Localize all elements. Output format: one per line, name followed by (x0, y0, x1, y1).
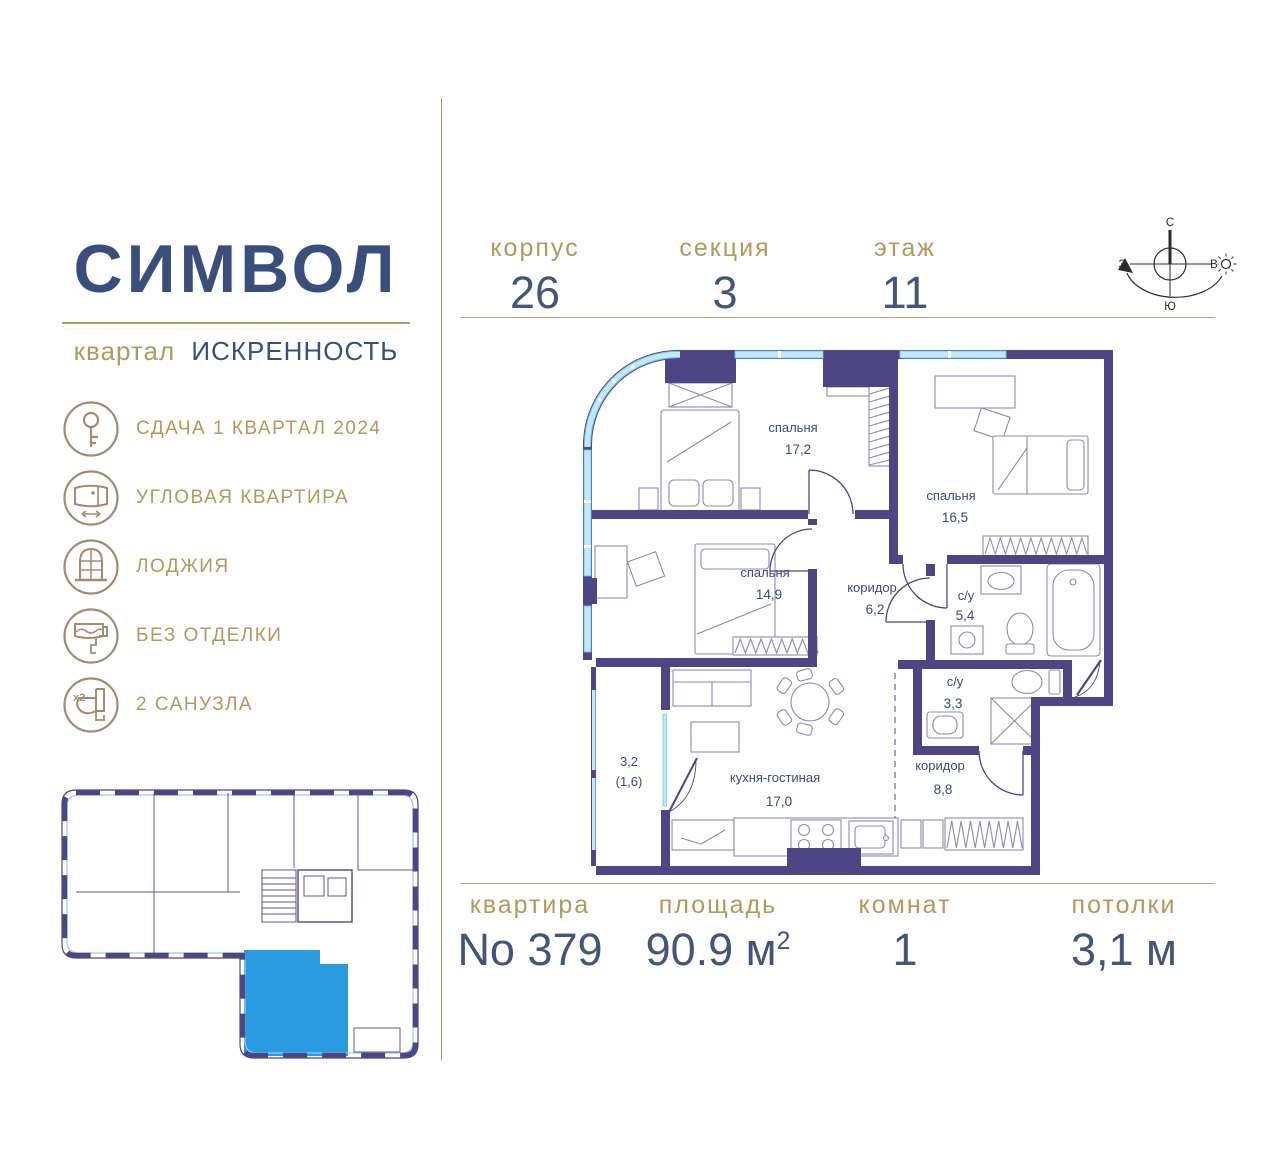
stat-value: No 379 (440, 924, 620, 976)
key-icon (62, 400, 120, 458)
tv-cabinet (672, 820, 734, 850)
stat-value: 3 (645, 267, 805, 319)
room-area: 8,8 (934, 782, 953, 797)
stat-label: секция (645, 234, 805, 263)
cabinet (901, 820, 921, 848)
stat-ceiling: потолки 3,1 м (1034, 891, 1214, 976)
brand-subtitle: квартал ИСКРЕННОСТЬ (62, 336, 410, 367)
toilet-x2-icon: x2 (62, 676, 120, 734)
stat-building: корпус 26 (455, 234, 615, 319)
feature-bathrooms: x2 2 САНУЗЛА (62, 674, 432, 736)
stat-value: 3,1 м (1034, 924, 1214, 976)
stat-label: этаж (825, 234, 985, 263)
footer-rule (460, 883, 1215, 884)
stat-label: корпус (455, 234, 615, 263)
pillow (1067, 440, 1084, 490)
building-floor-overview (58, 782, 436, 1070)
nightstand (741, 488, 760, 510)
stat-label: потолки (1034, 891, 1214, 920)
chair (828, 708, 845, 726)
stat-value: 90.9 м2 (628, 924, 808, 976)
cabinet (923, 820, 943, 848)
highlighted-unit[interactable] (244, 950, 348, 1056)
room-name: коридор (915, 758, 965, 773)
room-area: 3,3 (944, 696, 963, 711)
chair (627, 552, 664, 587)
room-area: 14,9 (756, 587, 782, 602)
feature-label: 2 САНУЗЛА (136, 694, 253, 716)
loggia-area-reduced: (1,6) (616, 774, 643, 789)
corner-apartment-icon (62, 469, 120, 527)
pillow (703, 480, 733, 506)
stat-value-text: 3,1 м (1071, 924, 1177, 975)
stat-value-text: No 379 (457, 924, 602, 975)
room-area: 5,4 (956, 608, 975, 623)
stat-value-text: 90.9 м (646, 924, 777, 975)
room-name: с/у (947, 674, 964, 689)
room-name: коридор (847, 580, 897, 595)
stat-floor: этаж 11 (825, 234, 985, 319)
chair (796, 668, 813, 682)
feature-finish: БЕЗ ОТДЕЛКИ (62, 605, 432, 667)
district-name: ИСКРЕННОСТЬ (191, 336, 398, 366)
stat-rooms: комнат 1 (815, 891, 995, 976)
dining-table (791, 683, 829, 721)
toilet (1007, 613, 1033, 645)
stat-value-sup: 2 (777, 928, 791, 955)
brand-logo: СИМВОЛ (60, 230, 412, 308)
apartment-floor-plan: спальня 17,2 спальня 16,5 спальня 14,9 к… (583, 350, 1113, 875)
stat-value: 1 (815, 924, 995, 976)
room-name: спальня (768, 420, 817, 435)
stat-apartment-number: квартира No 379 (440, 891, 620, 976)
room-name: спальня (926, 488, 975, 503)
desk (935, 376, 1015, 408)
room-name: спальня (740, 565, 789, 580)
arched-window-icon (62, 538, 120, 596)
compass-west: З (1119, 259, 1126, 271)
district-label: квартал (74, 336, 176, 366)
chair (776, 677, 793, 695)
stat-area: площадь 90.9 м2 (628, 891, 808, 976)
chair (796, 722, 813, 736)
feature-label: СДАЧА 1 КВАРТАЛ 2024 (136, 418, 382, 440)
stat-section: секция 3 (645, 234, 805, 319)
desk (595, 546, 627, 598)
logo-divider (62, 322, 410, 324)
toilet (1012, 671, 1042, 694)
room-name: с/у (958, 588, 975, 603)
coffee-table (691, 722, 739, 752)
x2-badge: x2 (73, 692, 85, 704)
stat-label: комнат (815, 891, 995, 920)
furniture-layer (595, 376, 1100, 856)
stat-value: 26 (455, 267, 615, 319)
unit-notch (320, 950, 348, 964)
stat-value: 11 (825, 267, 985, 319)
pillow (669, 480, 699, 506)
nightstand (639, 488, 658, 510)
compass-south: Ю (1164, 301, 1176, 313)
chair (828, 677, 845, 695)
compass-north: С (1166, 217, 1174, 229)
room-area: 17,0 (766, 794, 792, 809)
stat-label: квартира (440, 891, 620, 920)
compass-east: В (1210, 259, 1218, 271)
header-rule (460, 317, 1215, 318)
building-outline (62, 790, 418, 1058)
feature-corner: УГЛОВАЯ КВАРТИРА (62, 467, 432, 529)
loggia-area: 3,2 (620, 754, 638, 769)
paint-roller-icon (62, 607, 120, 665)
compass-icon: С Ю З В (1106, 216, 1238, 324)
feature-loggia: ЛОДЖИЯ (62, 536, 432, 598)
stat-value-text: 1 (892, 924, 917, 975)
stat-label: площадь (628, 891, 808, 920)
feature-label: УГЛОВАЯ КВАРТИРА (136, 487, 349, 509)
feature-completion: СДАЧА 1 КВАРТАЛ 2024 (62, 398, 432, 460)
room-area: 6,2 (866, 602, 885, 617)
room-area: 16,5 (942, 510, 968, 525)
feature-label: ЛОДЖИЯ (136, 556, 230, 578)
chair (776, 708, 793, 726)
feature-label: БЕЗ ОТДЕЛКИ (136, 625, 282, 647)
chair (974, 408, 1010, 440)
room-area: 17,2 (785, 442, 811, 457)
room-name: кухня-гостиная (730, 770, 820, 785)
